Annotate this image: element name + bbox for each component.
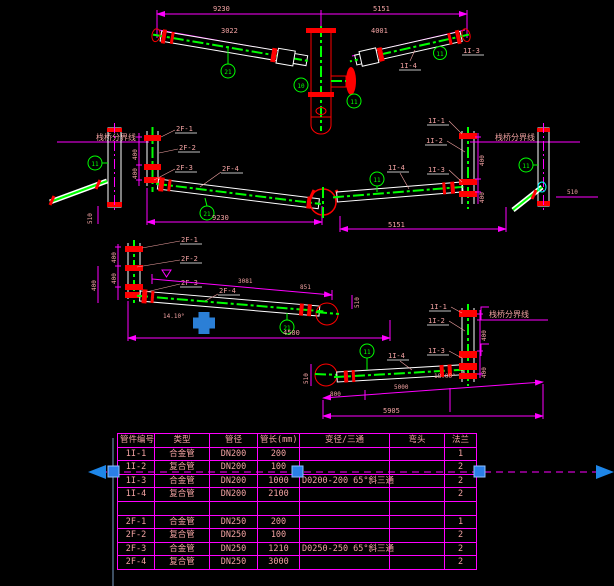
table-cell: 复合管 — [155, 556, 210, 570]
top-view: 9230 5151 3022 4001 — [151, 5, 484, 134]
part-label: 2F-4 — [219, 287, 236, 295]
table-cell — [300, 447, 390, 461]
part-label: 2F-1 — [181, 236, 198, 244]
table-cell — [300, 501, 390, 515]
table-cell — [390, 474, 445, 488]
table-cell: 2F-4 — [118, 556, 155, 570]
part-label: 1I-3 — [428, 166, 445, 174]
table-cell: 2100 — [258, 488, 300, 502]
part-label: 1I-4 — [388, 352, 405, 360]
left-detail-view: 2F-1 2F-2 2F-3 2F-4 14.10° 3081 851 510 … — [91, 236, 390, 341]
table-cell: 1I-1 — [118, 447, 155, 461]
column-header: 管件编号 — [118, 434, 155, 448]
dim-text: 5151 — [388, 221, 405, 229]
table-cell: 2 — [445, 488, 477, 502]
callout-number: 21 — [224, 69, 232, 76]
part-label: 1I-3 — [428, 347, 445, 355]
table-cell: 1I-3 — [118, 474, 155, 488]
dim-text: 9230 — [212, 214, 229, 222]
right-elevation-view: 1I-1 1I-2 1I-3 1I-4 11 栈桥分界线 400 400 — [310, 117, 598, 232]
table-cell — [155, 501, 210, 515]
column-header: 管长(mm) — [258, 434, 300, 448]
part-label: 1I-1 — [430, 303, 447, 311]
table-cell — [258, 501, 300, 515]
angle-text: 14.10° — [163, 313, 185, 320]
table-cell: D0200-200 65°斜三通 — [300, 474, 390, 488]
dim-text: 510 — [87, 213, 94, 224]
table-cell: 100 — [258, 529, 300, 543]
table-cell: DN250 — [210, 529, 258, 543]
part-label: 1I-2 — [426, 137, 443, 145]
callout-number: 11 — [363, 349, 371, 356]
table-cell — [300, 461, 390, 475]
table-cell: 合金管 — [155, 447, 210, 461]
dim-text: 400 — [132, 168, 139, 179]
table-cell: DN200 — [210, 461, 258, 475]
table-cell — [390, 447, 445, 461]
table-cell — [390, 542, 445, 556]
pipe-1i-arm — [333, 181, 466, 204]
table-cell: DN200 — [210, 474, 258, 488]
dim-text: 9230 — [213, 5, 230, 13]
parts-table-grid: 管件编号类型管径管长(mm)变径/三通弯头法兰 1I-1合金管DN2002001… — [117, 433, 477, 570]
table-cell: 200 — [258, 447, 300, 461]
dim-text: 400 — [481, 330, 488, 341]
dim-text: 400 — [111, 273, 118, 284]
left-elevation-view: 栈桥分界线 11 510 — [50, 123, 322, 225]
boundary-label: 栈桥分界线 — [495, 132, 535, 142]
weld-symbol-icon — [162, 270, 171, 277]
table-cell — [390, 461, 445, 475]
column-header: 管径 — [210, 434, 258, 448]
table-cell: 1 — [445, 447, 477, 461]
table-row: 1I-2复合管DN2001002 — [118, 461, 477, 475]
callout-number: 11 — [522, 163, 530, 170]
table-cell: DN200 — [210, 488, 258, 502]
table-cell — [390, 501, 445, 515]
table-cell: 1 — [445, 515, 477, 529]
column-header: 弯头 — [390, 434, 445, 448]
table-cell — [300, 556, 390, 570]
column-header: 变径/三通 — [300, 434, 390, 448]
table-cell: 200 — [258, 515, 300, 529]
table-cell: DN250 — [210, 542, 258, 556]
part-label: 1I-4 — [400, 62, 417, 70]
table-cell: 复合管 — [155, 529, 210, 543]
dim-text: 510 — [354, 297, 361, 308]
dim-text: 4001 — [371, 27, 388, 35]
central-riser-pipe — [306, 26, 356, 134]
dim-text: 400 — [479, 192, 486, 203]
dim-text: 4500 — [283, 329, 300, 337]
parts-table: 管件编号类型管径管长(mm)变径/三通弯头法兰 1I-1合金管DN2002001… — [117, 433, 477, 570]
callout-number: 21 — [203, 211, 211, 218]
table-cell — [210, 501, 258, 515]
dim-text: 5000 — [394, 384, 409, 391]
table-row: 1I-3合金管DN2001000D0200-200 65°斜三通2 — [118, 474, 477, 488]
table-row: 2F-4复合管DN25030002 — [118, 556, 477, 570]
table-cell — [390, 488, 445, 502]
table-cell: 合金管 — [155, 474, 210, 488]
table-cell: 2 — [445, 461, 477, 475]
table-cell: 2F-2 — [118, 529, 155, 543]
table-cell: 2F-1 — [118, 515, 155, 529]
part-label: 1I-4 — [388, 164, 405, 172]
table-cell: DN200 — [210, 447, 258, 461]
table-cell: 2 — [445, 474, 477, 488]
pipe-1i-detail — [459, 304, 477, 386]
pipe-1i — [459, 127, 477, 209]
table-cell — [300, 529, 390, 543]
table-cell — [118, 501, 155, 515]
table-cell: DN250 — [210, 556, 258, 570]
table-cell — [300, 488, 390, 502]
boundary-label: 栈桥分界线 — [96, 132, 136, 142]
right-detail-view: 510 1I-1 1I-2 1I-3 — [303, 303, 548, 419]
dim-text: 400 — [111, 252, 118, 263]
parts-table-body: 1I-1合金管DN20020011I-2复合管DN20010021I-3合金管D… — [118, 447, 477, 569]
table-cell — [390, 515, 445, 529]
callout-number: 11 — [373, 177, 381, 184]
table-cell: 复合管 — [155, 461, 210, 475]
part-label: 2F-2 — [181, 255, 198, 263]
callout-number: 11 — [350, 99, 358, 106]
dim-text: 400 — [481, 367, 488, 378]
column-header: 类型 — [155, 434, 210, 448]
pipe-2f-arm — [155, 177, 321, 211]
column-header: 法兰 — [445, 434, 477, 448]
part-label: 2F-2 — [179, 144, 196, 152]
table-cell: D0250-250 65°斜三通 — [300, 542, 390, 556]
table-cell: 复合管 — [155, 488, 210, 502]
table-cell: 100 — [258, 461, 300, 475]
table-cell: 1I-2 — [118, 461, 155, 475]
dim-text: 851 — [300, 284, 311, 291]
boundary-label: 栈桥分界线 — [489, 309, 529, 319]
table-cell: 3000 — [258, 556, 300, 570]
dim-text: 510 — [567, 189, 578, 196]
dim-text: 3081 — [238, 278, 253, 285]
dim-text: 5905 — [383, 407, 400, 415]
table-cell: DN250 — [210, 515, 258, 529]
part-label: 1I-2 — [428, 317, 445, 325]
table-cell: 2F-3 — [118, 542, 155, 556]
table-cell: 1000 — [258, 474, 300, 488]
table-cell: 1210 — [258, 542, 300, 556]
table-cell — [300, 515, 390, 529]
dim-text: 800 — [330, 391, 341, 398]
callout-number: 11 — [91, 161, 99, 168]
dim-text: 400 — [479, 155, 486, 166]
table-cell — [390, 556, 445, 570]
table-cell: 1I-4 — [118, 488, 155, 502]
part-label: 2F-4 — [222, 165, 239, 173]
table-cell — [445, 501, 477, 515]
table-header-row: 管件编号类型管径管长(mm)变径/三通弯头法兰 — [118, 434, 477, 448]
table-cell: 合金管 — [155, 515, 210, 529]
part-label: 2F-1 — [176, 125, 193, 133]
callout-number: 10 — [297, 83, 305, 90]
table-row: 1I-1合金管DN2002001 — [118, 447, 477, 461]
table-cell: 2 — [445, 556, 477, 570]
dim-text: 510 — [303, 373, 310, 384]
part-label: 2F-3 — [176, 164, 193, 172]
dim-text: 3022 — [221, 27, 238, 35]
dim-text: 5151 — [373, 5, 390, 13]
callout-number: 11 — [436, 51, 444, 58]
table-row: 2F-2复合管DN2501002 — [118, 529, 477, 543]
table-row: 1I-4复合管DN20021002 — [118, 488, 477, 502]
dim-text: 400 — [132, 149, 139, 160]
table-row — [118, 501, 477, 515]
table-row: 2F-3合金管DN2501210D0250-250 65°斜三通2 — [118, 542, 477, 556]
table-cell — [390, 529, 445, 543]
part-label: 1I-1 — [428, 117, 445, 125]
table-cell: 2 — [445, 529, 477, 543]
cad-canvas[interactable]: 9230 5151 3022 4001 — [0, 0, 614, 586]
table-cell: 2 — [445, 542, 477, 556]
table-cell: 合金管 — [155, 542, 210, 556]
angle-text: 18.00° — [434, 373, 456, 380]
table-row: 2F-1合金管DN2502001 — [118, 515, 477, 529]
part-label: 1I-3 — [463, 47, 480, 55]
dim-text: 400 — [91, 280, 98, 291]
